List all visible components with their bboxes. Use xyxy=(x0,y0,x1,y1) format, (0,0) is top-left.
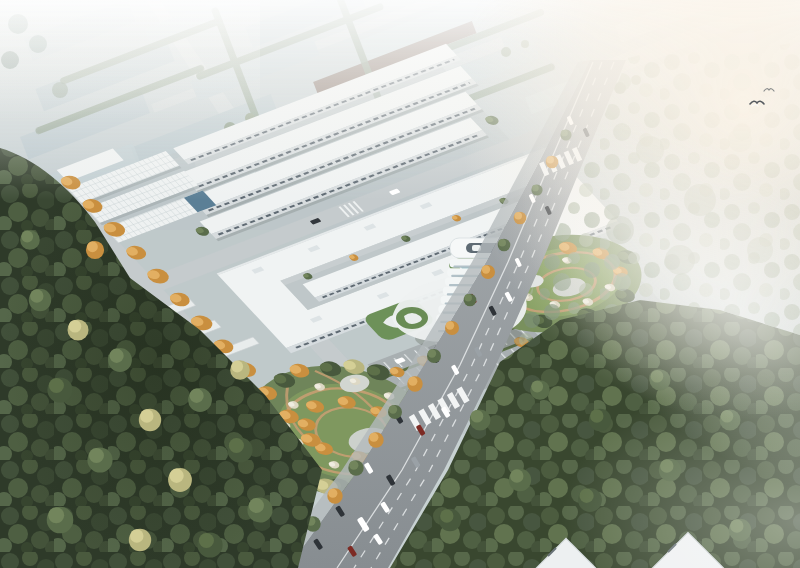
aerial-rendering: Aerial rendering of an industrial park c… xyxy=(0,0,800,568)
rendering-canvas xyxy=(0,0,800,568)
